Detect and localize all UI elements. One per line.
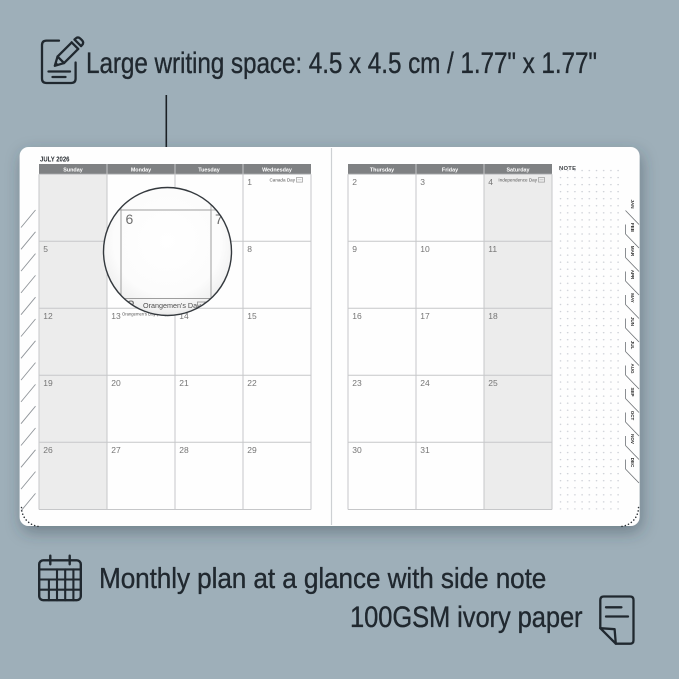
svg-text:DEC: DEC xyxy=(630,458,635,468)
svg-text:11: 11 xyxy=(488,244,497,254)
svg-text:10: 10 xyxy=(420,244,430,254)
svg-text:Wednesday: Wednesday xyxy=(262,167,292,173)
svg-text:20: 20 xyxy=(111,378,121,388)
svg-text:21: 21 xyxy=(179,378,189,388)
svg-text:Thursday: Thursday xyxy=(370,167,394,173)
svg-text:9: 9 xyxy=(352,244,357,254)
svg-text:Canada Day: Canada Day xyxy=(269,178,295,183)
svg-text:18: 18 xyxy=(488,311,498,321)
svg-text:28: 28 xyxy=(179,445,189,455)
svg-text:16: 16 xyxy=(352,311,362,321)
svg-text:15: 15 xyxy=(247,311,257,321)
svg-text:6: 6 xyxy=(126,211,134,227)
svg-text:2: 2 xyxy=(352,177,357,187)
svg-text:JULY 2026: JULY 2026 xyxy=(40,156,70,163)
svg-text:12: 12 xyxy=(43,311,53,321)
svg-text:APR: APR xyxy=(630,270,635,280)
svg-text:FEB: FEB xyxy=(630,223,635,233)
svg-text:25: 25 xyxy=(488,378,498,388)
svg-text:17: 17 xyxy=(420,311,430,321)
svg-text:Friday: Friday xyxy=(442,167,458,173)
svg-text:23: 23 xyxy=(352,378,362,388)
svg-text:AUG: AUG xyxy=(630,364,635,374)
svg-text:24: 24 xyxy=(420,378,430,388)
svg-text:MAY: MAY xyxy=(630,293,635,303)
svg-text:30: 30 xyxy=(352,445,362,455)
svg-text:NOV: NOV xyxy=(630,434,635,444)
svg-text:3: 3 xyxy=(420,177,425,187)
svg-text:OCT: OCT xyxy=(630,411,635,421)
svg-text:13: 13 xyxy=(111,311,121,321)
svg-text:Tuesday: Tuesday xyxy=(198,167,219,173)
svg-text:JAN: JAN xyxy=(630,199,635,208)
svg-text:MAR: MAR xyxy=(630,246,635,257)
svg-text:29: 29 xyxy=(247,445,257,455)
svg-text:JUN: JUN xyxy=(630,317,635,326)
svg-text:5: 5 xyxy=(43,244,48,254)
svg-text:19: 19 xyxy=(43,378,53,388)
svg-text:4: 4 xyxy=(488,177,493,187)
svg-text:26: 26 xyxy=(43,445,53,455)
svg-text:22: 22 xyxy=(247,378,257,388)
svg-text:Independence Day: Independence Day xyxy=(498,178,537,183)
svg-text:1: 1 xyxy=(247,177,252,187)
svg-text:Monday: Monday xyxy=(131,167,151,173)
svg-text:8: 8 xyxy=(247,244,252,254)
svg-text:JUL: JUL xyxy=(630,341,635,350)
svg-text:Sunday: Sunday xyxy=(63,167,82,173)
svg-text:27: 27 xyxy=(111,445,121,455)
svg-text:31: 31 xyxy=(420,445,430,455)
svg-text:SEP: SEP xyxy=(630,387,635,396)
svg-text:Saturday: Saturday xyxy=(506,167,529,173)
